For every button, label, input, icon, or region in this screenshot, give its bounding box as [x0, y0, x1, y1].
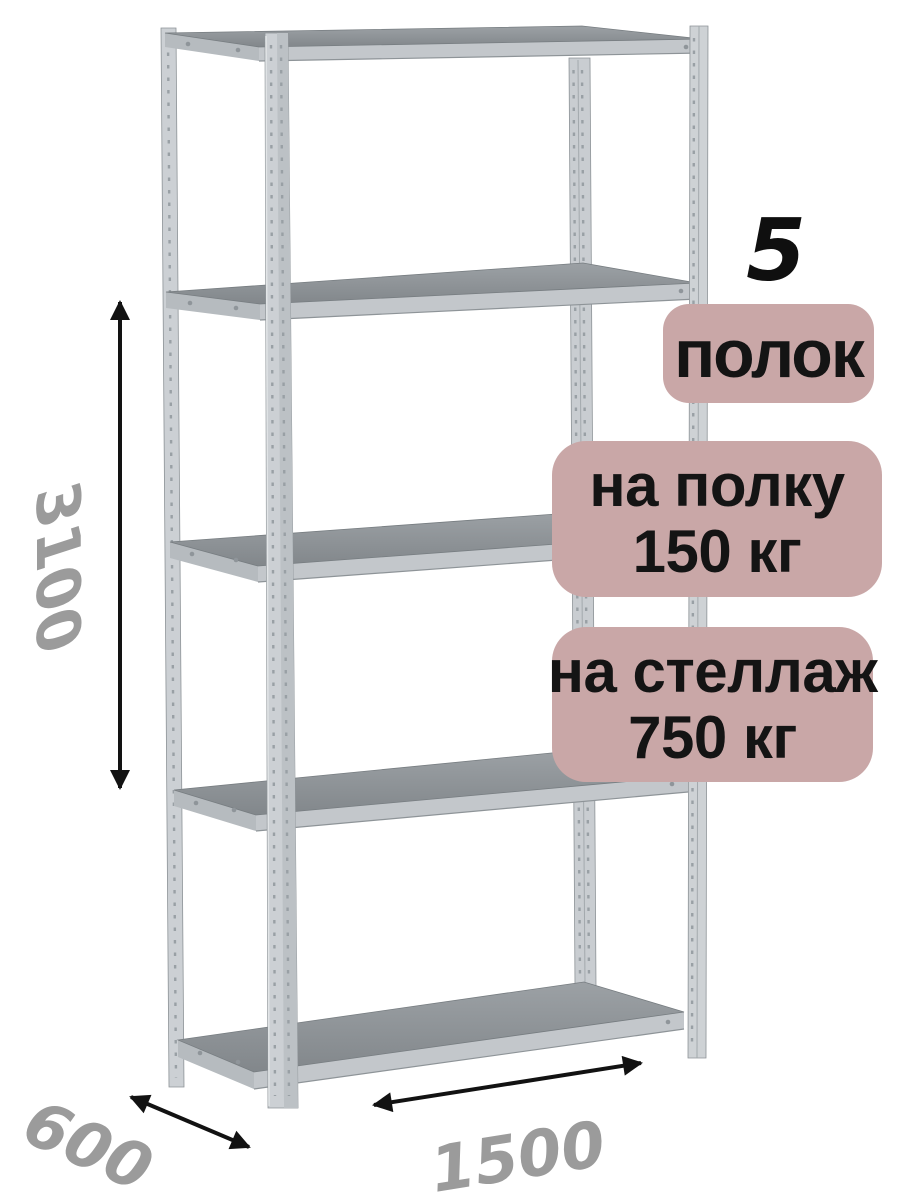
shelving-rack-illustration [0, 0, 900, 1200]
shelf-load-text: на полку [589, 453, 844, 519]
shelf-load-value: 150 кг [633, 519, 802, 585]
shelf-5 [178, 982, 684, 1089]
shelf-count-number: 5 [726, 206, 826, 296]
shelf-load-badge: на полку 150 кг [552, 441, 882, 597]
rack-load-value: 750 кг [628, 705, 797, 771]
shelf-2 [166, 263, 697, 320]
rack-load-text: на стеллаж [548, 639, 878, 705]
width-dimension-arrow [374, 1063, 641, 1105]
product-dimension-image: 5 полок на полку 150 кг на стеллаж 750 к… [0, 0, 900, 1200]
front-left-post [265, 33, 298, 1108]
height-dimension-label: 3100 [22, 473, 92, 663]
shelf-count-label: полок [674, 320, 863, 388]
shelf-count-badge: полок [663, 304, 874, 403]
shelf-1 [165, 26, 702, 61]
rack-load-badge: на стеллаж 750 кг [552, 627, 873, 782]
